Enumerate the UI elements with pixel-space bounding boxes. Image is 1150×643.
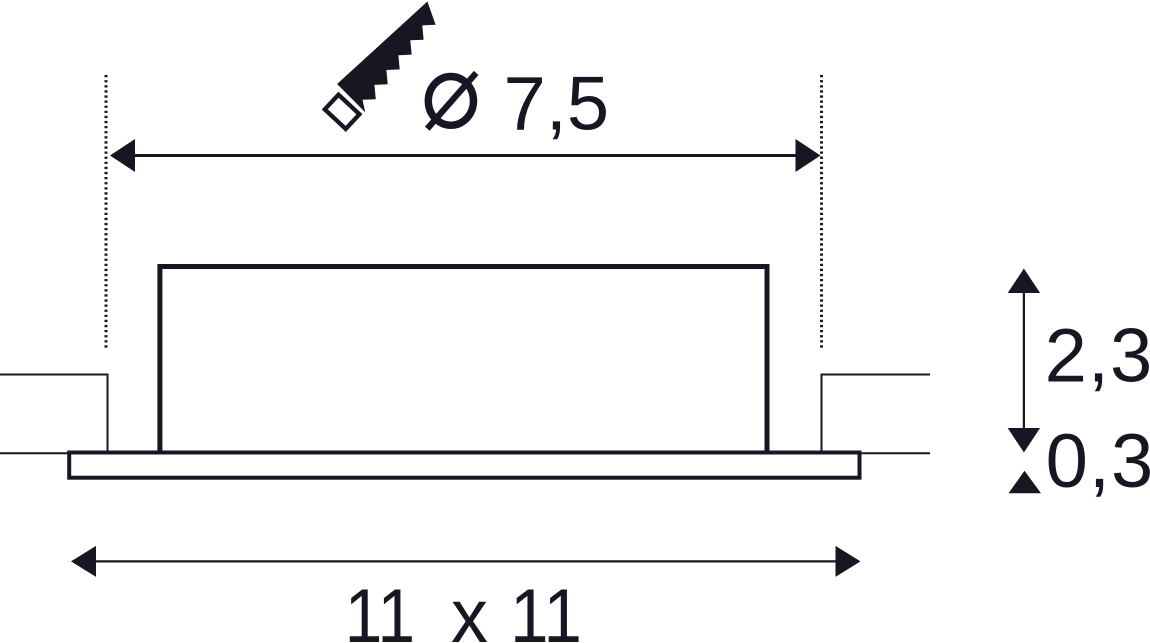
svg-text:11: 11 xyxy=(345,574,416,643)
svg-text:x: x xyxy=(451,574,488,643)
svg-text:11: 11 xyxy=(510,574,582,643)
svg-text:0,3: 0,3 xyxy=(1046,419,1150,504)
svg-text:7,5: 7,5 xyxy=(504,62,610,147)
svg-text:2,3: 2,3 xyxy=(1045,314,1150,399)
